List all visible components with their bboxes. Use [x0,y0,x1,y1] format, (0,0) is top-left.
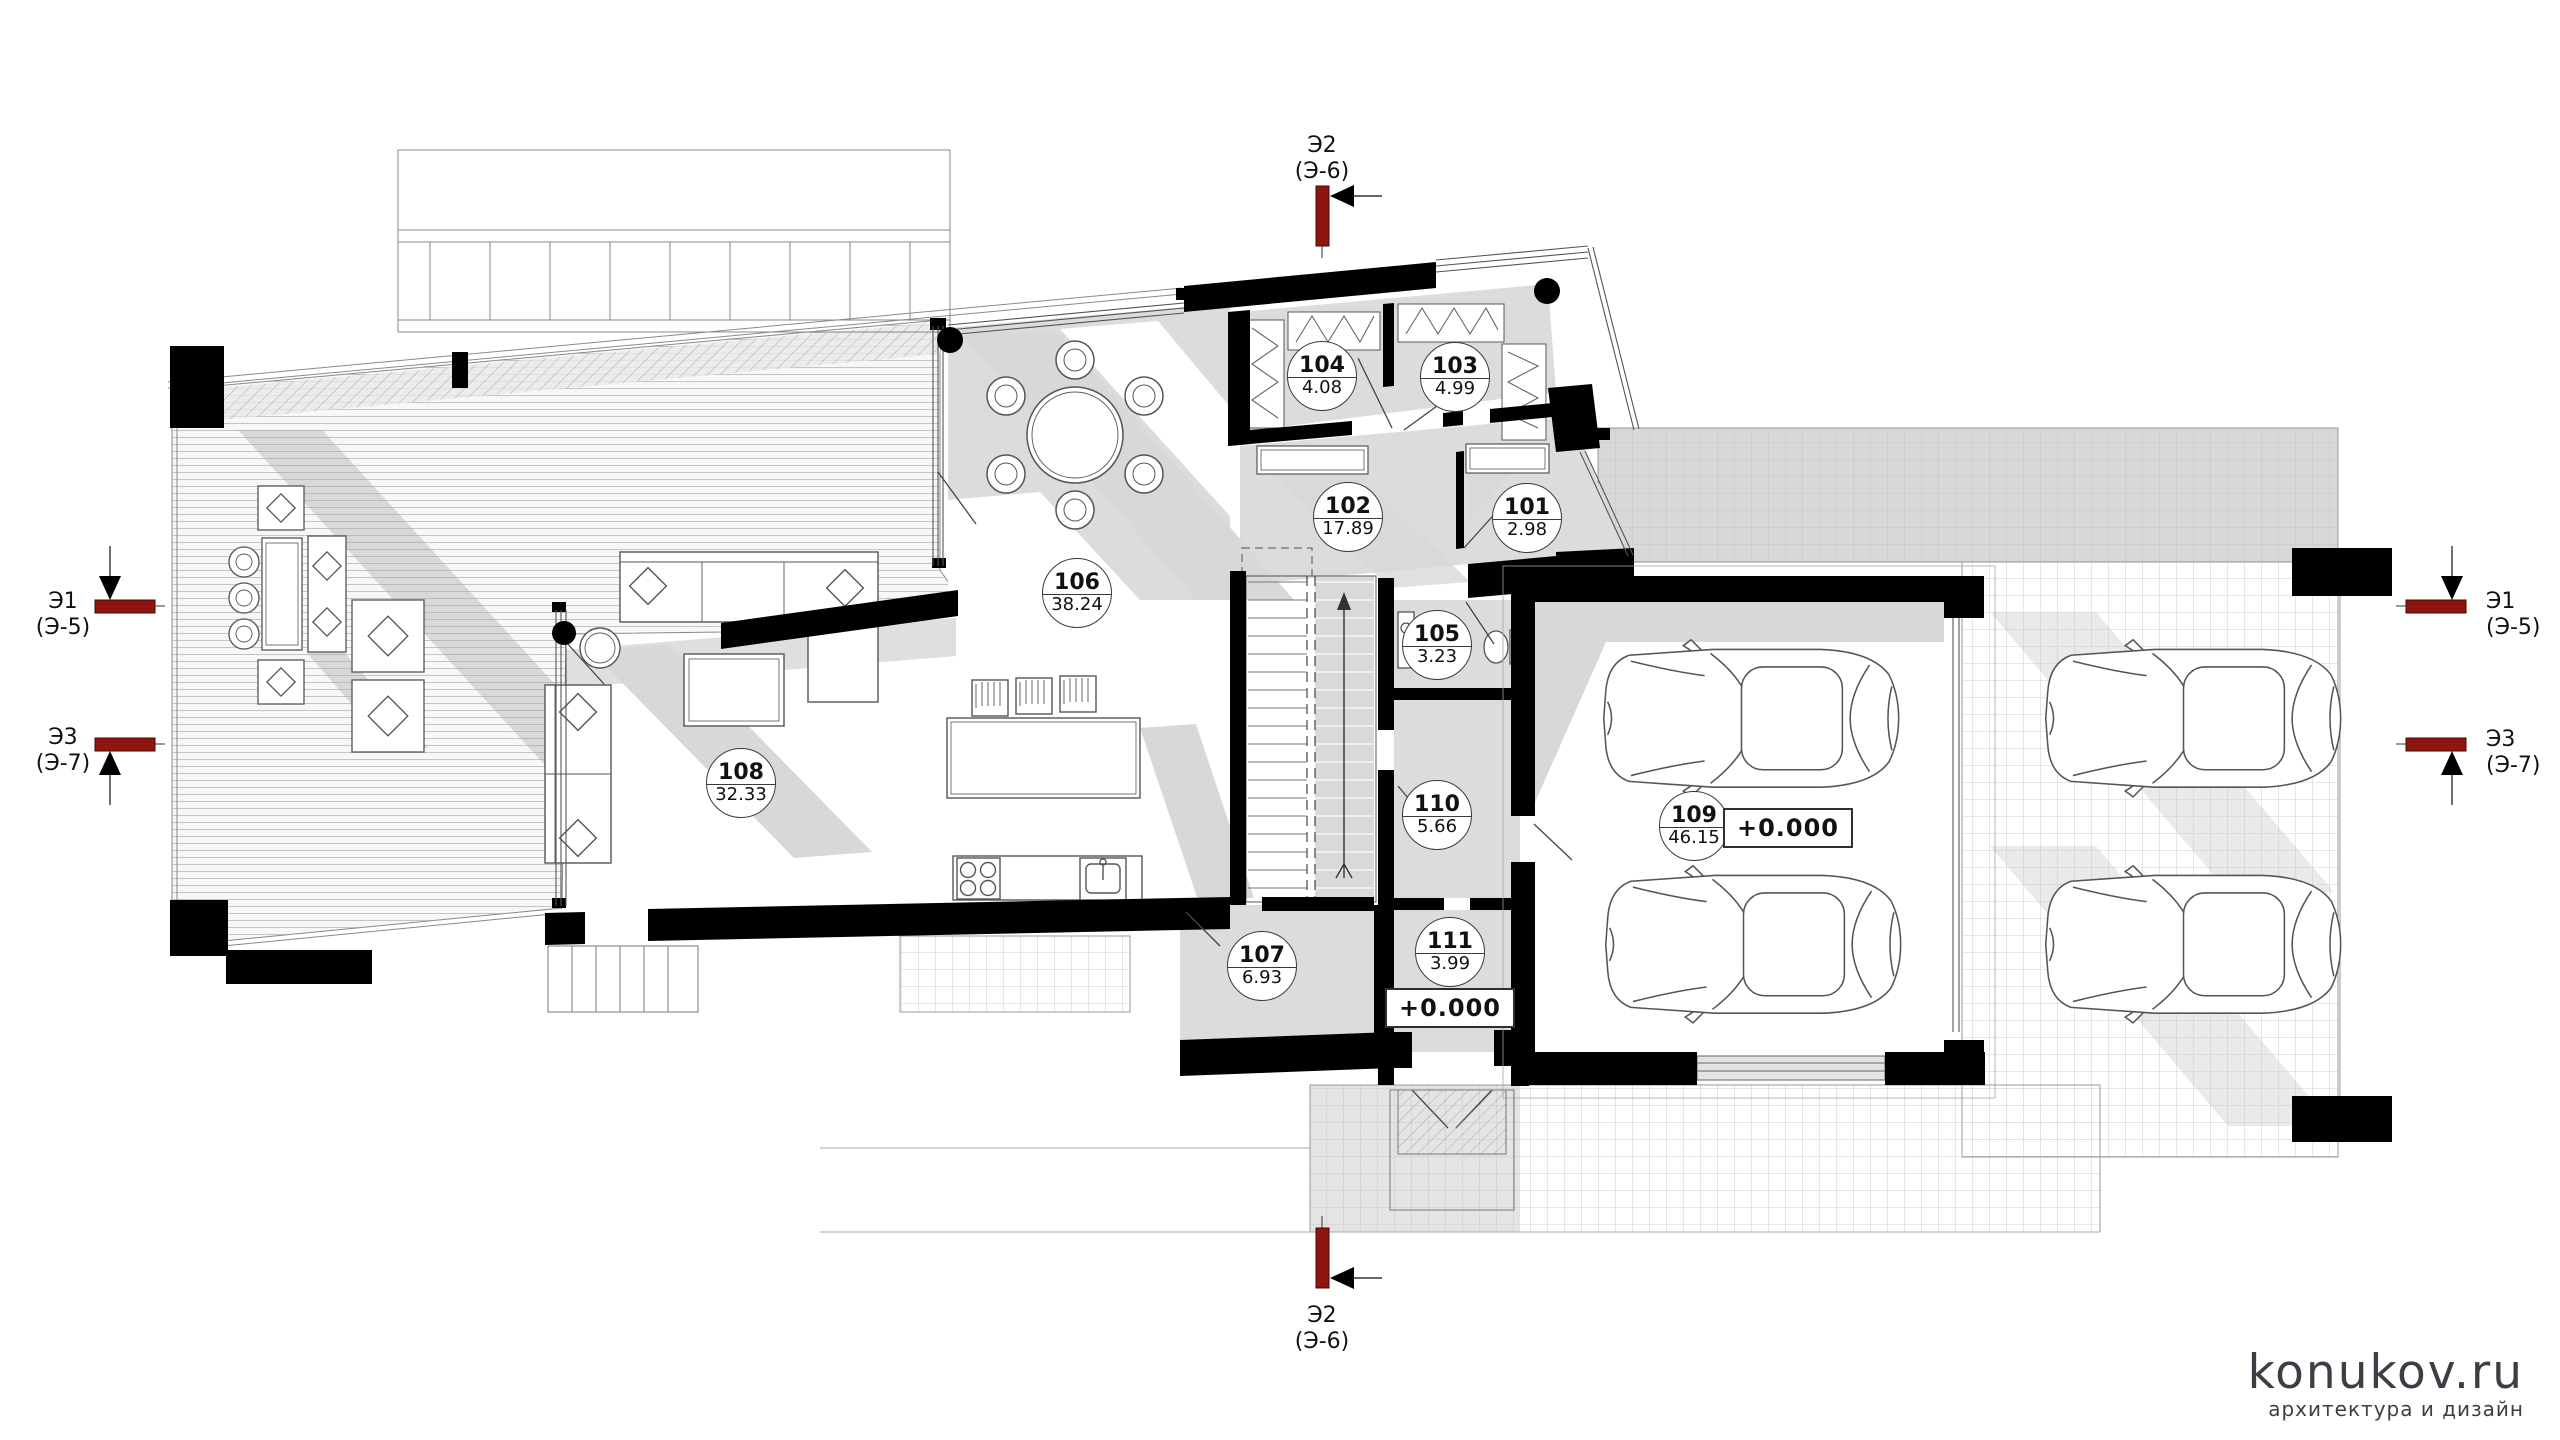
section-marker-right-lower: Э3 (Э-7) [2396,727,2540,805]
section-label: Э3 [2486,727,2515,752]
side-table [580,628,620,668]
section-label: Э1 [48,589,77,614]
section-ref: (Э-7) [2486,753,2540,778]
deck-steps [548,946,698,1012]
section-marker-bottom: Э2 (Э-6) [1295,1216,1382,1354]
outdoor-table [262,538,302,650]
dining-table [1027,387,1123,483]
floor-plan-drawing: Э2 (Э-6) Э2 (Э-6) Э1 (Э-5) Э3 (Э-7) [0,0,2560,1440]
bar-stool [1016,678,1052,714]
car-garage-2 [1606,866,1901,1023]
section-label: Э2 [1307,1303,1336,1328]
section-label: Э3 [48,725,77,750]
kitchen-island [947,718,1140,798]
bar-stool [972,680,1008,716]
column [937,327,963,353]
coffee-table [684,654,784,726]
watermark-brand: konukov.ru [2248,1345,2524,1400]
stairs [1242,548,1376,902]
column [552,621,576,645]
section-ref: (Э-6) [1295,159,1349,184]
watermark: konukov.ru архитектура и дизайн [2248,1345,2524,1421]
garage-door [1697,1056,1885,1080]
car-parked-1 [2046,640,2341,797]
bar-stool [1060,676,1096,712]
section-label: Э2 [1307,133,1336,158]
section-ref: (Э-6) [1295,1329,1349,1354]
section-ref: (Э-7) [36,751,90,776]
section-marker-right-upper: Э1 (Э-5) [2396,546,2540,640]
section-label: Э1 [2486,589,2515,614]
column [1534,278,1560,304]
section-marker-top: Э2 (Э-6) [1295,133,1382,258]
section-marker-left-upper: Э1 (Э-5) [36,546,165,640]
washbasin-counter [1398,612,1414,668]
cooktop [957,858,1000,899]
floor-plan-page: Э2 (Э-6) Э2 (Э-6) Э1 (Э-5) Э3 (Э-7) [0,0,2560,1440]
car-garage-1 [1604,640,1899,797]
section-ref: (Э-5) [2486,615,2540,640]
section-marker-left-lower: Э3 (Э-7) [36,725,165,805]
section-ref: (Э-5) [36,615,90,640]
watermark-tagline: архитектура и дизайн [2268,1397,2524,1421]
car-parked-2 [2046,866,2341,1023]
sink [1080,858,1126,900]
outdoor-chair [229,547,259,649]
